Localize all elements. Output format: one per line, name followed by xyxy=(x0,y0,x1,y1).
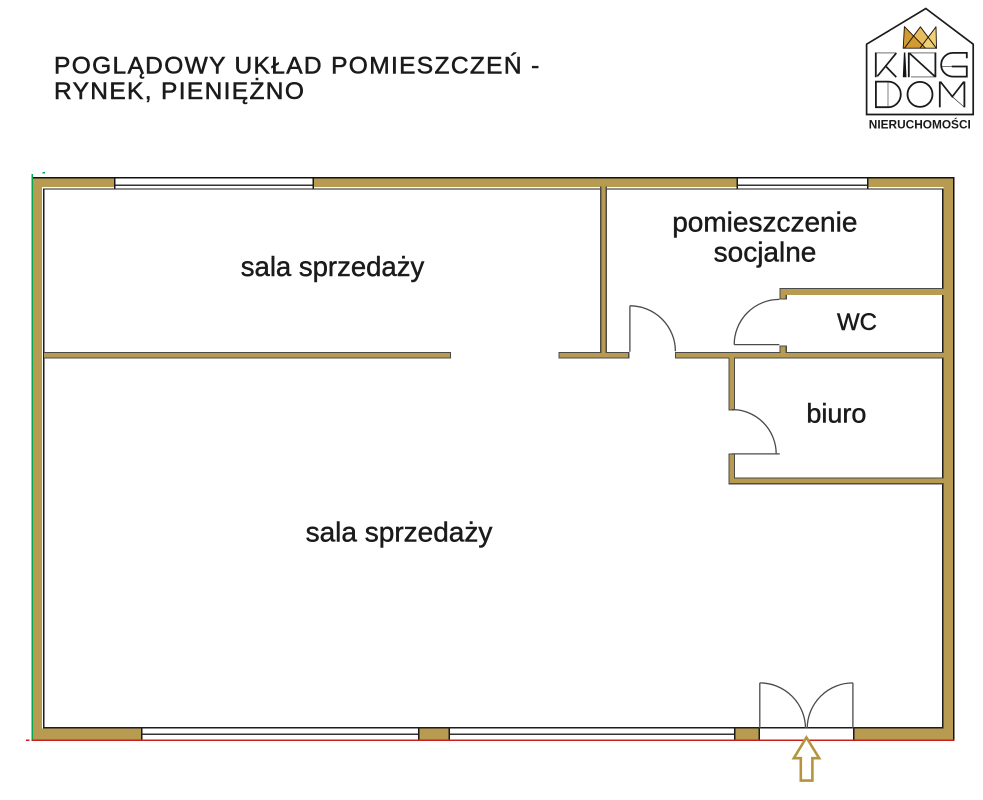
svg-text:socjalne: socjalne xyxy=(714,237,817,268)
svg-text:NIERUCHOMOŚCI: NIERUCHOMOŚCI xyxy=(869,119,971,132)
svg-text:sala sprzedaży: sala sprzedaży xyxy=(241,251,425,282)
svg-text:biuro: biuro xyxy=(806,398,866,428)
svg-text:pomieszczenie: pomieszczenie xyxy=(672,206,857,237)
svg-text:sala sprzedaży: sala sprzedaży xyxy=(306,516,493,547)
svg-text:RYNEK, PIENIĘŻNO: RYNEK, PIENIĘŻNO xyxy=(54,78,305,105)
svg-text:POGLĄDOWY UKŁAD POMIESZCZEŃ -: POGLĄDOWY UKŁAD POMIESZCZEŃ - xyxy=(54,52,541,79)
svg-text:WC: WC xyxy=(837,309,877,336)
